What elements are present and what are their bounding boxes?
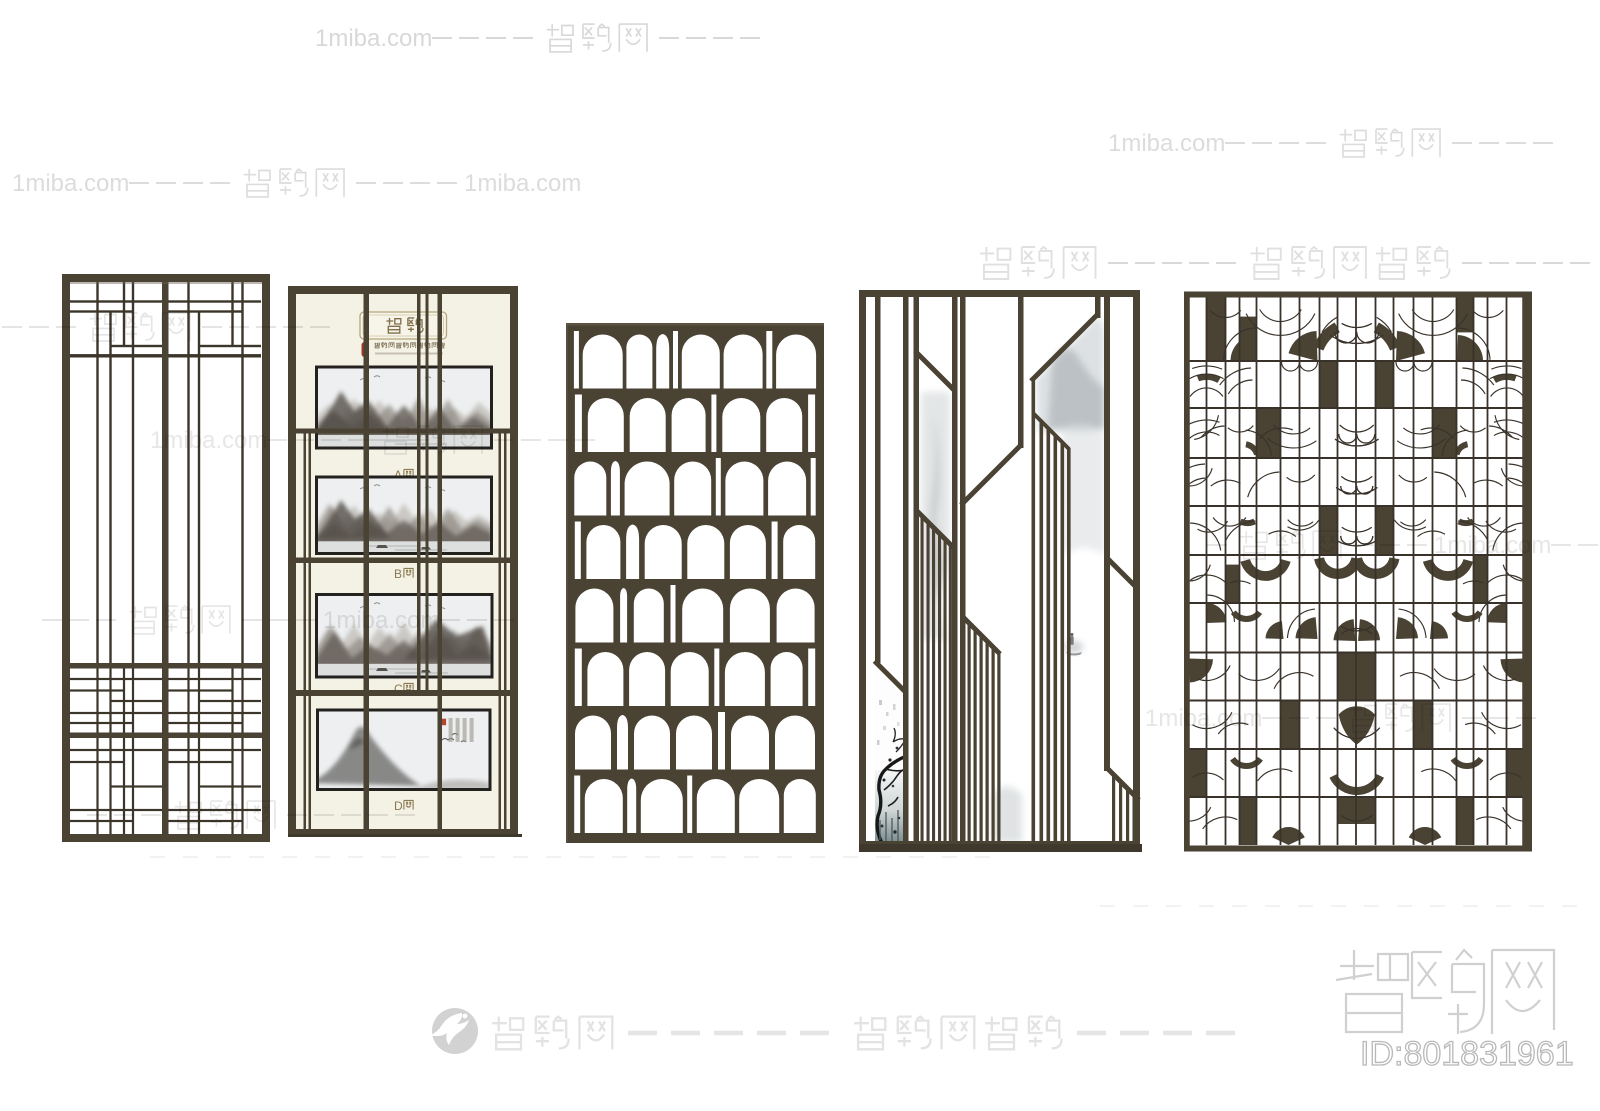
svg-text:1miba.com: 1miba.com: [1145, 705, 1262, 732]
svg-text:1miba.com: 1miba.com: [323, 607, 440, 634]
svg-text:D: D: [394, 799, 403, 813]
svg-text:B: B: [394, 567, 402, 581]
svg-text:1miba.com: 1miba.com: [1108, 130, 1225, 157]
svg-text:1miba.com: 1miba.com: [1434, 532, 1551, 559]
svg-text:1miba.com: 1miba.com: [150, 427, 267, 454]
svg-text:1miba.com: 1miba.com: [315, 25, 432, 52]
svg-text:1miba.com: 1miba.com: [12, 170, 129, 197]
svg-text:1miba.com: 1miba.com: [464, 170, 581, 197]
svg-text:ID:801831961: ID:801831961: [1360, 1035, 1574, 1073]
